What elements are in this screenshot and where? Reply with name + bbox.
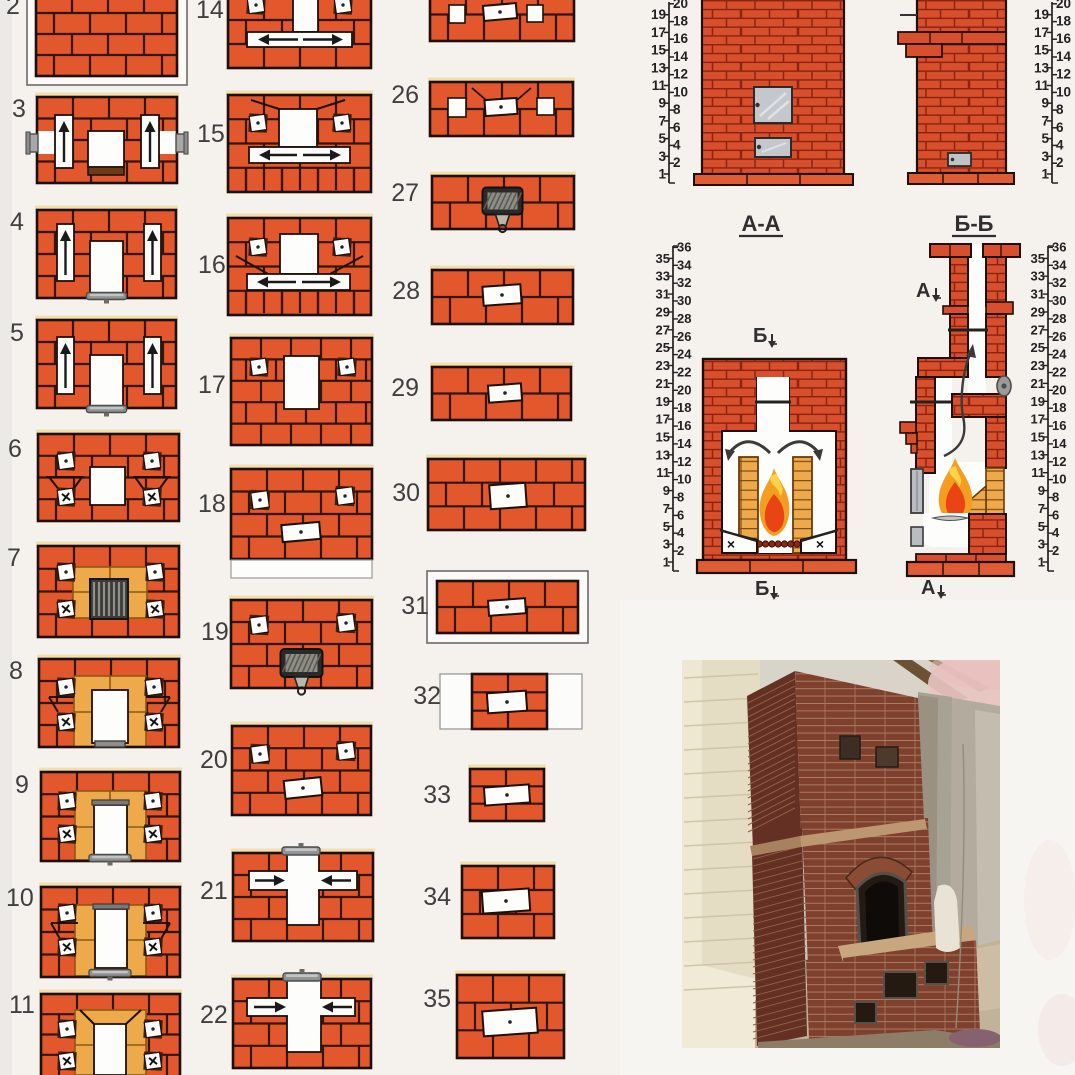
svg-text:2: 2 [6, 0, 20, 20]
svg-text:7: 7 [658, 113, 666, 128]
svg-text:13: 13 [651, 60, 667, 75]
svg-text:26: 26 [677, 329, 691, 344]
svg-text:6: 6 [1056, 120, 1064, 135]
svg-text:16: 16 [1052, 418, 1066, 433]
svg-text:9: 9 [658, 96, 666, 111]
svg-text:20: 20 [1056, 0, 1071, 11]
svg-text:5: 5 [658, 131, 666, 146]
svg-text:20: 20 [1052, 382, 1066, 397]
svg-text:3: 3 [1038, 537, 1045, 552]
svg-text:32: 32 [677, 275, 691, 290]
svg-text:1: 1 [1038, 555, 1045, 570]
svg-text:10: 10 [673, 84, 688, 99]
svg-text:17: 17 [656, 412, 670, 427]
svg-text:15: 15 [1034, 43, 1050, 58]
svg-text:15: 15 [656, 430, 670, 445]
svg-text:14: 14 [196, 0, 224, 24]
svg-text:22: 22 [200, 1001, 228, 1029]
svg-text:15: 15 [1031, 430, 1045, 445]
svg-text:А-А: А-А [741, 211, 780, 236]
svg-text:16: 16 [677, 418, 691, 433]
svg-text:23: 23 [1031, 358, 1045, 373]
svg-text:12: 12 [1052, 454, 1066, 469]
svg-text:А: А [921, 577, 935, 599]
svg-text:29: 29 [391, 374, 419, 402]
svg-text:4: 4 [1052, 525, 1060, 540]
svg-text:5: 5 [1038, 519, 1045, 534]
svg-text:30: 30 [392, 479, 420, 507]
svg-text:20: 20 [677, 382, 691, 397]
svg-text:19: 19 [1034, 7, 1049, 22]
svg-text:23: 23 [656, 358, 670, 373]
svg-text:8: 8 [677, 490, 684, 505]
svg-text:11: 11 [9, 991, 35, 1019]
svg-text:8: 8 [673, 102, 681, 117]
svg-text:4: 4 [10, 208, 24, 236]
svg-text:×: × [816, 536, 824, 552]
svg-text:21: 21 [656, 376, 670, 391]
svg-text:9: 9 [1041, 96, 1049, 111]
svg-text:8: 8 [1056, 102, 1064, 117]
svg-text:31: 31 [401, 592, 429, 620]
svg-text:33: 33 [1031, 269, 1045, 284]
svg-text:13: 13 [1034, 60, 1050, 75]
svg-text:3: 3 [12, 95, 26, 123]
svg-text:14: 14 [1052, 436, 1067, 451]
svg-text:17: 17 [1034, 25, 1049, 40]
svg-text:28: 28 [677, 311, 691, 326]
svg-text:22: 22 [1052, 365, 1066, 380]
svg-text:×: × [727, 536, 735, 552]
svg-text:11: 11 [652, 78, 667, 93]
svg-text:26: 26 [1052, 329, 1066, 344]
svg-text:2: 2 [1052, 543, 1059, 558]
svg-text:6: 6 [1052, 507, 1059, 522]
svg-text:5: 5 [1041, 131, 1049, 146]
svg-text:10: 10 [1052, 472, 1066, 487]
svg-text:30: 30 [677, 293, 691, 308]
svg-text:16: 16 [673, 31, 689, 46]
svg-text:21: 21 [200, 877, 228, 905]
svg-text:10: 10 [6, 884, 34, 912]
svg-text:33: 33 [423, 781, 451, 809]
svg-text:14: 14 [1056, 49, 1072, 64]
svg-text:9: 9 [15, 771, 29, 799]
svg-text:24: 24 [677, 347, 692, 362]
svg-text:19: 19 [1031, 394, 1045, 409]
svg-text:4: 4 [1056, 137, 1064, 152]
svg-text:13: 13 [656, 447, 670, 462]
svg-text:1: 1 [663, 555, 670, 570]
svg-text:31: 31 [656, 287, 670, 302]
svg-text:34: 34 [677, 257, 692, 272]
svg-text:8: 8 [9, 657, 23, 685]
svg-text:20: 20 [673, 0, 688, 11]
svg-text:12: 12 [677, 454, 691, 469]
svg-text:2: 2 [1056, 155, 1064, 170]
svg-text:22: 22 [677, 365, 691, 380]
svg-text:10: 10 [1056, 84, 1071, 99]
svg-text:1: 1 [1041, 167, 1049, 182]
svg-text:18: 18 [677, 400, 691, 415]
svg-text:32: 32 [1052, 275, 1066, 290]
svg-text:25: 25 [1031, 340, 1045, 355]
svg-text:4: 4 [673, 137, 681, 152]
svg-text:9: 9 [663, 483, 670, 498]
svg-text:5: 5 [10, 319, 24, 347]
svg-text:25: 25 [656, 340, 670, 355]
svg-text:29: 29 [656, 305, 670, 320]
svg-text:18: 18 [1056, 14, 1072, 29]
svg-text:7: 7 [663, 501, 670, 516]
svg-text:11: 11 [1035, 78, 1050, 93]
svg-text:10: 10 [677, 472, 691, 487]
svg-text:Б: Б [755, 578, 769, 600]
svg-text:12: 12 [673, 67, 688, 82]
svg-text:15: 15 [197, 120, 225, 148]
svg-text:7: 7 [7, 544, 21, 572]
svg-text:5: 5 [663, 519, 670, 534]
svg-text:28: 28 [392, 277, 420, 305]
svg-text:14: 14 [673, 49, 689, 64]
svg-text:7: 7 [1041, 113, 1049, 128]
svg-text:19: 19 [201, 618, 229, 646]
svg-text:33: 33 [656, 269, 670, 284]
svg-text:16: 16 [1056, 31, 1072, 46]
svg-text:26: 26 [391, 81, 419, 109]
svg-text:24: 24 [1052, 347, 1067, 362]
svg-text:3: 3 [663, 537, 670, 552]
svg-text:35: 35 [1031, 251, 1045, 266]
svg-text:11: 11 [1031, 465, 1045, 480]
svg-text:6: 6 [8, 435, 22, 463]
svg-text:1: 1 [658, 167, 666, 182]
svg-text:34: 34 [1052, 257, 1067, 272]
svg-text:Б-Б: Б-Б [955, 211, 994, 236]
svg-text:31: 31 [1031, 287, 1045, 302]
svg-text:13: 13 [1031, 447, 1045, 462]
svg-text:18: 18 [1052, 400, 1066, 415]
svg-text:А: А [916, 280, 930, 302]
svg-text:3: 3 [658, 149, 666, 164]
svg-text:6: 6 [673, 120, 681, 135]
svg-text:17: 17 [1031, 412, 1045, 427]
svg-text:27: 27 [1031, 322, 1045, 337]
svg-text:29: 29 [1031, 305, 1045, 320]
svg-text:27: 27 [391, 179, 419, 207]
svg-text:8: 8 [1052, 490, 1059, 505]
svg-text:Б: Б [753, 325, 767, 347]
svg-text:27: 27 [656, 322, 670, 337]
svg-text:30: 30 [1052, 293, 1066, 308]
svg-text:12: 12 [1056, 67, 1071, 82]
svg-text:34: 34 [423, 883, 451, 911]
svg-text:36: 36 [677, 239, 691, 254]
svg-text:20: 20 [200, 746, 228, 774]
svg-text:28: 28 [1052, 311, 1066, 326]
svg-text:15: 15 [651, 43, 667, 58]
svg-text:3: 3 [1041, 149, 1049, 164]
svg-text:14: 14 [677, 436, 692, 451]
svg-text:6: 6 [677, 507, 684, 522]
svg-text:18: 18 [673, 14, 689, 29]
svg-text:2: 2 [677, 543, 684, 558]
svg-text:35: 35 [423, 985, 451, 1013]
svg-text:4: 4 [677, 525, 685, 540]
svg-text:21: 21 [1031, 376, 1045, 391]
svg-text:35: 35 [656, 251, 670, 266]
svg-text:2: 2 [673, 155, 681, 170]
svg-text:19: 19 [656, 394, 670, 409]
svg-text:16: 16 [198, 251, 226, 279]
svg-text:7: 7 [1038, 501, 1045, 516]
svg-text:17: 17 [198, 371, 226, 399]
svg-text:18: 18 [198, 490, 226, 518]
svg-text:19: 19 [651, 7, 666, 22]
svg-text:9: 9 [1038, 483, 1045, 498]
svg-text:36: 36 [1052, 239, 1066, 254]
svg-text:32: 32 [413, 682, 441, 710]
svg-text:17: 17 [651, 25, 666, 40]
svg-text:11: 11 [656, 465, 670, 480]
